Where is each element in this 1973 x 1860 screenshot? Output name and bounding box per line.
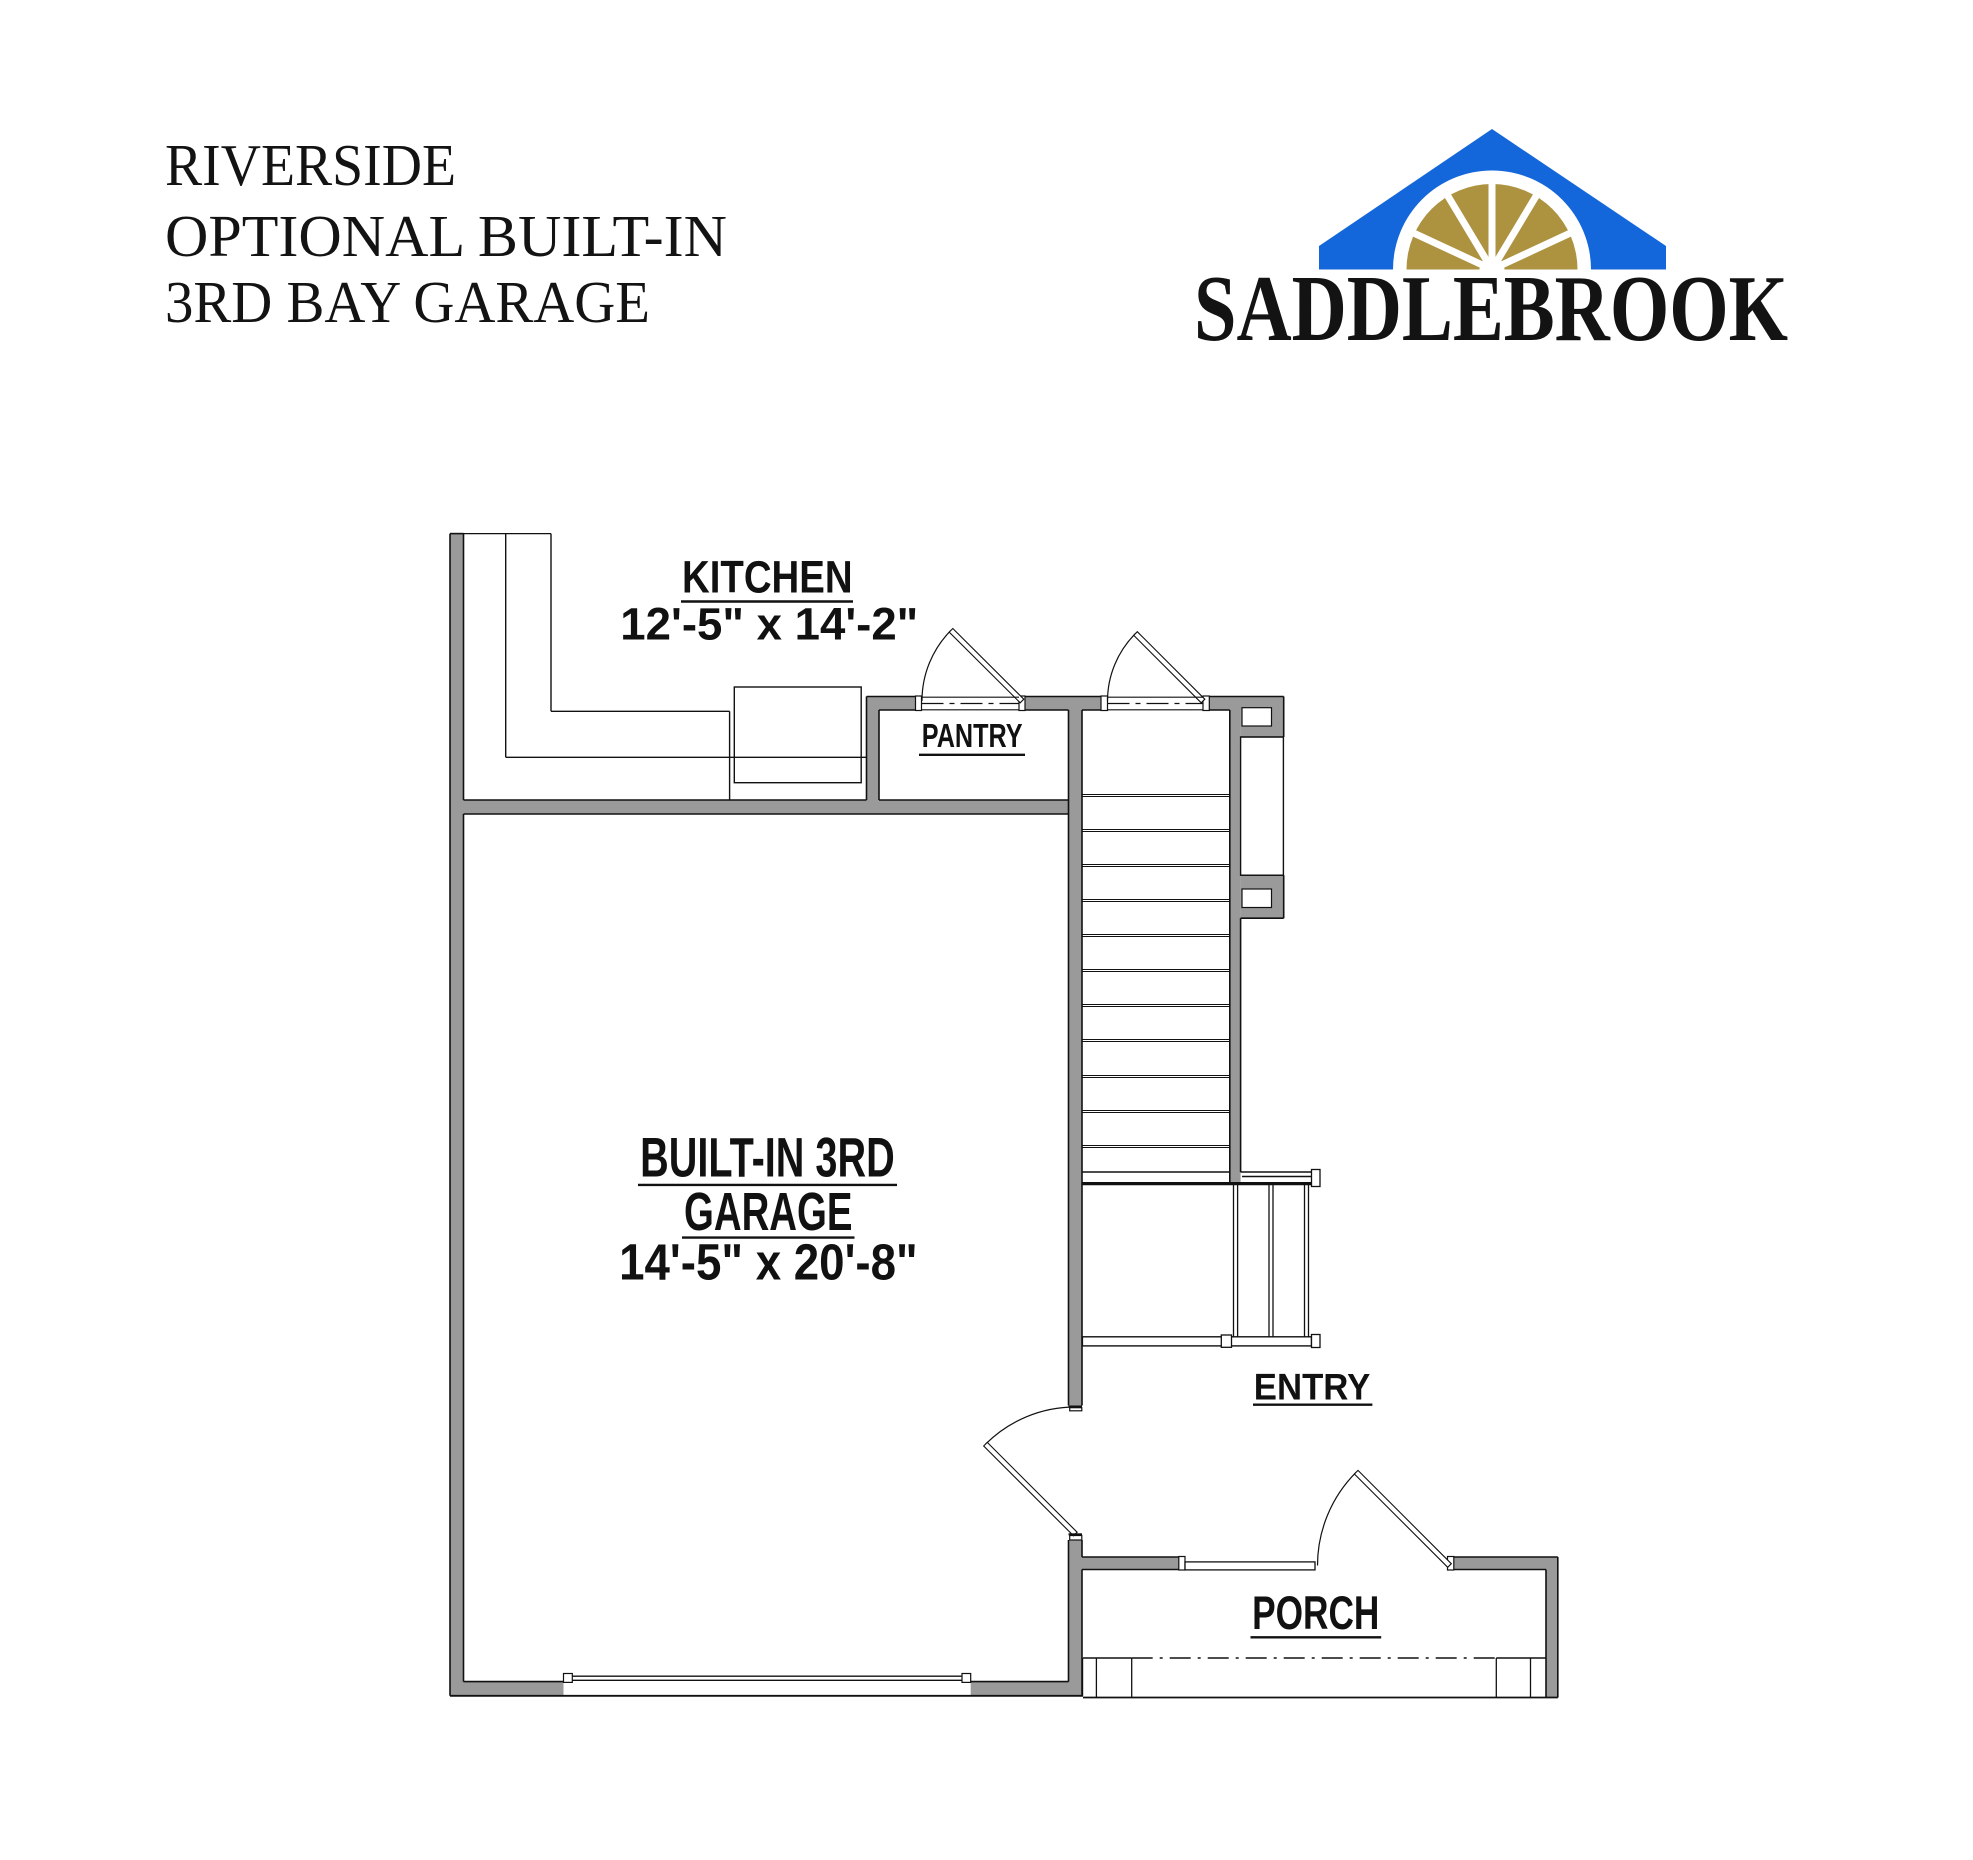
svg-text:ENTRY: ENTRY <box>1254 1367 1371 1408</box>
svg-text:RIVERSIDE: RIVERSIDE <box>165 132 456 198</box>
svg-text:KITCHEN: KITCHEN <box>682 552 853 603</box>
svg-text:OPTIONAL BUILT-IN: OPTIONAL BUILT-IN <box>165 203 727 269</box>
svg-text:SADDLEBROOK: SADDLEBROOK <box>1194 257 1788 361</box>
svg-text:12'-5" x 14'-2": 12'-5" x 14'-2" <box>620 599 918 650</box>
svg-text:14'-5" x 20'-8": 14'-5" x 20'-8" <box>619 1234 918 1291</box>
svg-text:BUILT-IN 3RD: BUILT-IN 3RD <box>640 1125 895 1188</box>
svg-text:PANTRY: PANTRY <box>922 718 1023 755</box>
svg-text:PORCH: PORCH <box>1252 1587 1379 1640</box>
svg-text:3RD BAY GARAGE: 3RD BAY GARAGE <box>165 269 650 335</box>
